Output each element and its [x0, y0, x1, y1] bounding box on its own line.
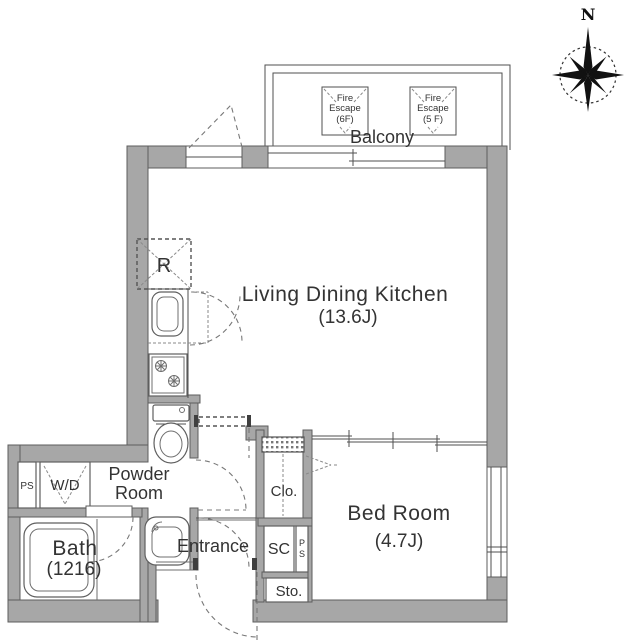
room-size-ldk: (13.6J) — [318, 307, 377, 328]
room-label-closet: Clo. — [271, 483, 298, 500]
compass-rose-icon: N — [552, 5, 624, 112]
balcony-door-swing — [189, 105, 242, 148]
label-washer-dryer: W/D — [50, 477, 79, 494]
window-ldk-main — [268, 146, 445, 168]
fire-escape-6f-line3: (6F) — [336, 114, 353, 125]
label-pipe-shaft-s: S — [299, 549, 305, 559]
fire-escape-6f-label: Fire Escape (6F) — [329, 93, 361, 125]
label-refrigerator: R — [157, 255, 171, 277]
room-label-storage: Sto. — [276, 583, 303, 600]
compass-north-label: N — [581, 5, 596, 24]
kitchen-door-swing — [190, 292, 242, 345]
floor-plan-drawing: N Balcony Fire Escape (6F) Fire Escape (… — [0, 0, 640, 640]
label-pipe-shaft-p: P — [299, 538, 305, 548]
room-label-powder-1: Powder — [108, 464, 169, 484]
room-label-powder-2: Room — [115, 483, 163, 503]
sliding-door-partition — [312, 430, 487, 452]
fire-escape-5f-line3: (5 F) — [423, 114, 443, 125]
stove — [149, 354, 187, 396]
closet-hanger-rail — [262, 437, 304, 452]
balcony-label: Balcony — [350, 127, 414, 147]
room-size-bath: (1216) — [47, 559, 102, 580]
fire-escape-5f-label: Fire Escape (5 F) — [417, 93, 449, 125]
room-size-bedroom: (4.7J) — [375, 531, 424, 552]
kitchen-sink — [152, 292, 183, 336]
room-label-ldk: Living Dining Kitchen — [242, 283, 449, 306]
floor-plan-page: N Balcony Fire Escape (6F) Fire Escape (… — [0, 0, 640, 640]
label-pipe-shaft: PS — [20, 481, 34, 492]
fire-escape-5f-line2: Escape — [417, 103, 449, 114]
room-label-bath: Bath — [52, 537, 97, 560]
fire-escape-6f-line2: Escape — [329, 103, 361, 114]
window-balcony-door — [186, 146, 242, 168]
window-bedroom — [487, 467, 507, 577]
room-label-bedroom: Bed Room — [347, 502, 450, 525]
room-label-shoe-closet: SC — [268, 541, 290, 558]
toilet — [153, 405, 189, 463]
room-label-entrance: Entrance — [177, 536, 249, 556]
